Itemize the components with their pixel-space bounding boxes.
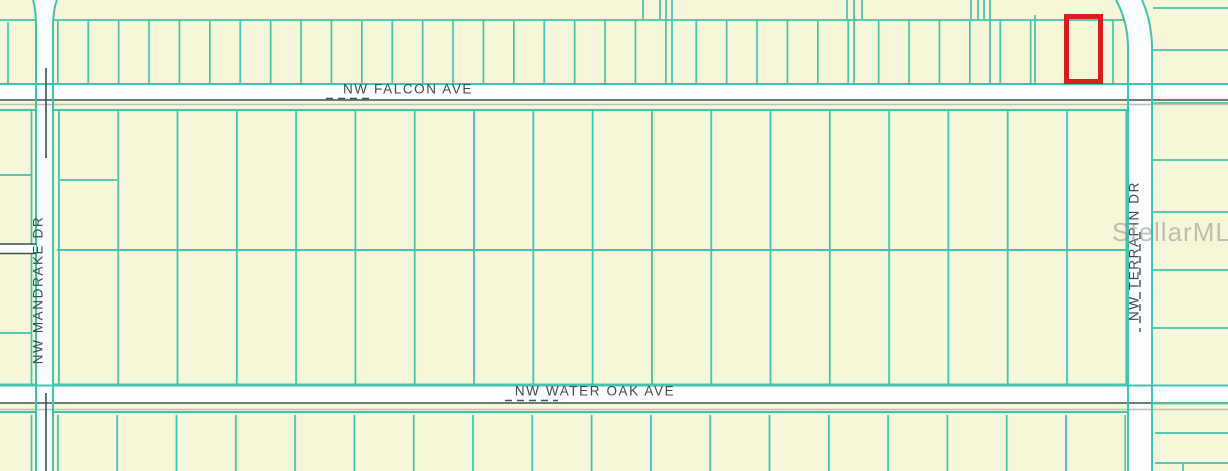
parcel-grid bbox=[0, 0, 1228, 471]
street-label-falcon-ave: NW FALCON AVE bbox=[343, 82, 473, 97]
street-label-water-oak-ave: NW WATER OAK AVE bbox=[515, 384, 675, 399]
street-label-terrapin-dr: NW TERRAPIN DR bbox=[1127, 181, 1142, 321]
selected-parcel-highlight[interactable] bbox=[1064, 14, 1103, 84]
mls-watermark: StellarMLS bbox=[1112, 217, 1228, 248]
street-label-mandrake-dr: NW MANDRAKE DR bbox=[31, 216, 46, 364]
map-canvas[interactable]: NW FALCON AVE NW WATER OAK AVE NW MANDRA… bbox=[0, 0, 1228, 471]
